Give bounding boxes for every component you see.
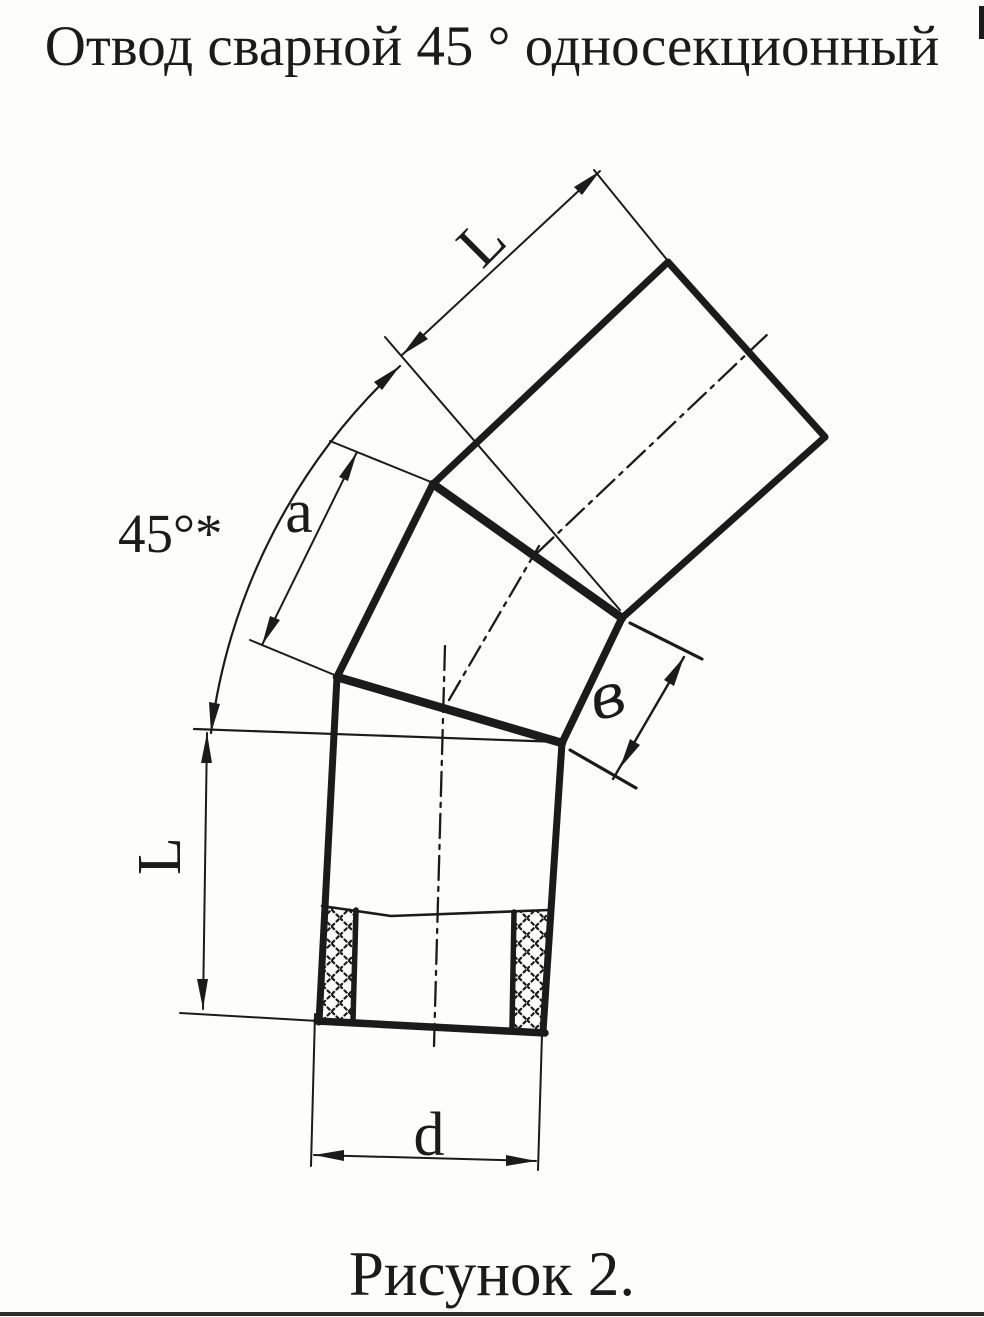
scan-mark-top-right <box>979 6 984 39</box>
scanned-page: Отвод сварной 45 ° односекционный <box>0 0 984 1317</box>
hatch-block-right <box>512 909 549 1031</box>
arrowhead <box>314 1150 344 1161</box>
scan-edge-bottom <box>0 1312 984 1316</box>
top-pipe-lower-edge <box>622 437 825 618</box>
centerline-middle-section <box>449 546 539 700</box>
arrowhead <box>664 657 684 686</box>
dimension-a <box>250 441 431 676</box>
top-pipe-end-face <box>668 262 825 437</box>
ext-line-L-bottom <box>180 1013 318 1021</box>
arrowhead <box>620 739 640 768</box>
dim-label-d: d <box>414 1101 445 1169</box>
ext-line-d-left <box>311 1014 315 1166</box>
ext-line-a-bottom <box>250 640 337 676</box>
dim-label-L-top: L <box>444 205 519 280</box>
top-pipe-upper-edge <box>433 262 668 484</box>
arrowhead <box>506 1155 536 1166</box>
arrowhead <box>197 979 208 1009</box>
middle-section-left-edge <box>337 484 433 677</box>
backing-ring-right-inner-edge <box>512 912 514 1028</box>
middle-section-outline <box>337 484 622 743</box>
dim-label-L-left: L <box>126 837 194 875</box>
dim-label-b: в <box>582 659 633 735</box>
angle-arc <box>211 366 400 733</box>
arrowhead <box>262 616 280 645</box>
backing-ring-left-inner-edge <box>353 910 356 1020</box>
weld-seam-lower <box>337 677 562 743</box>
scan-artifacts <box>0 6 984 1316</box>
ext-line-d-right <box>538 1034 542 1170</box>
ext-line-end-face <box>594 170 668 261</box>
elbow-drawing: L a 45°* в <box>0 0 984 1317</box>
weld-seam-upper <box>433 484 622 618</box>
ext-line-horizontal <box>194 729 560 742</box>
angle-label-45: 45°* <box>118 503 223 564</box>
dimension-L-top <box>385 170 668 610</box>
figure-caption: Рисунок 2. <box>0 1238 984 1311</box>
dimension-b <box>570 623 702 788</box>
dimension-L-left <box>180 733 318 1021</box>
ext-line-b-top <box>630 623 702 659</box>
bottom-pipe-right-edge <box>543 743 562 1032</box>
top-pipe-outline <box>433 262 825 618</box>
ext-line-to-miter-vertex <box>385 337 620 610</box>
arrowhead <box>339 452 357 481</box>
arrowhead <box>201 733 212 763</box>
hatch-block-left <box>319 907 356 1021</box>
dim-line-L-left <box>203 733 207 1009</box>
